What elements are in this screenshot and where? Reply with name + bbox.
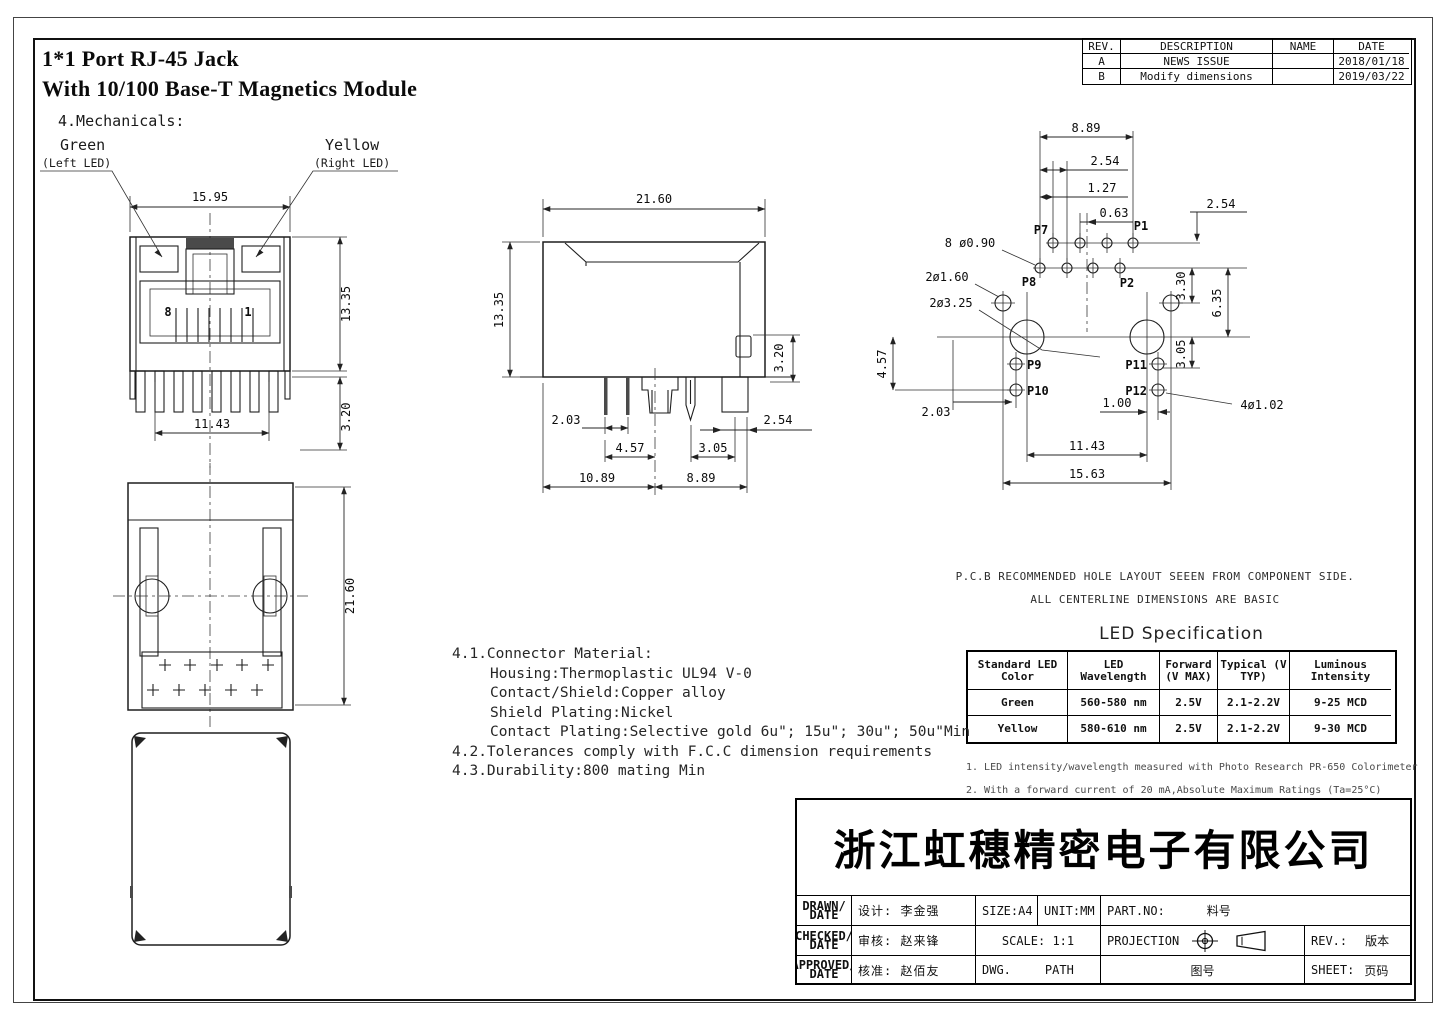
led-cell: Yellow xyxy=(968,716,1068,742)
led-cell: 9-30 MCD xyxy=(1290,716,1391,742)
p1-label: P1 xyxy=(1134,219,1148,233)
note-41c: Shield Plating:Nickel xyxy=(452,704,970,724)
dim-label: 21.60 xyxy=(343,578,357,614)
pcb-hole-layout: P7 P1 P8 P2 P9 P10 P11 P12 8 ø0.90 2ø1.6… xyxy=(875,121,1284,490)
led-specification: LED Specification Standard LED Color LED… xyxy=(966,624,1397,802)
pin-marks xyxy=(147,659,274,696)
dim-label: 15.95 xyxy=(192,190,228,204)
part-no-value: 料号 xyxy=(1207,902,1231,919)
led-cell: 2.1-2.2V xyxy=(1218,690,1290,716)
dim-label: 1.00 xyxy=(1103,396,1132,410)
hole-callout: 2ø3.25 xyxy=(929,296,972,310)
drawn-label: DRAWN/ DATE xyxy=(797,896,852,926)
scale-cell: SCALE: 1:1 xyxy=(976,926,1101,956)
dim-label: 15.63 xyxy=(1069,467,1105,481)
led-col-header: LED Wavelength xyxy=(1068,652,1160,690)
pcb-note-line1: P.C.B RECOMMENDED HOLE LAYOUT SEEEN FROM… xyxy=(955,570,1355,583)
dim-label: 1.27 xyxy=(1088,181,1117,195)
pcb-note: P.C.B RECOMMENDED HOLE LAYOUT SEEEN FROM… xyxy=(955,570,1355,606)
pin1-label: 1 xyxy=(244,305,251,319)
third-angle-projection-icon xyxy=(1189,929,1293,953)
pcb-note-line2: ALL CENTERLINE DIMENSIONS ARE BASIC xyxy=(955,593,1355,606)
top-view xyxy=(130,733,292,945)
dim-label: 3.05 xyxy=(1174,340,1188,369)
green-led-label: Green xyxy=(60,136,105,154)
note-41: 4.1.Connector Material: xyxy=(452,645,970,665)
dim-label: 3.20 xyxy=(339,403,353,432)
note-41a: Housing:Thermoplastic UL94 V-0 xyxy=(452,665,970,685)
side-view: 21.60 13.35 2.03 4.57 xyxy=(492,192,812,497)
led-cell: 560-580 nm xyxy=(1068,690,1160,716)
led-cell: Green xyxy=(968,690,1068,716)
dim-label: 11.43 xyxy=(1069,439,1105,453)
p11-label: P11 xyxy=(1125,358,1147,372)
dwg-cell: DWG. PATH xyxy=(976,956,1101,984)
green-led-sublabel: (Left LED) xyxy=(42,156,111,170)
led-cell: 580-610 nm xyxy=(1068,716,1160,742)
rev-cell: REV.: 版本 xyxy=(1305,926,1410,956)
front-view: 15.95 8 1 xyxy=(40,136,398,468)
led-cell: 2.5V xyxy=(1160,690,1218,716)
approved-label: APPROVED/ DATE xyxy=(797,956,852,984)
part-no-label: PART.NO: xyxy=(1107,904,1165,918)
yellow-led-sublabel: (Right LED) xyxy=(314,156,390,170)
checker-cell: 审核: 赵来锋 xyxy=(852,926,976,956)
title-block: 浙江虹穗精密电子有限公司 DRAWN/ DATE 设计: 李金强 SIZE:A4… xyxy=(795,798,1412,985)
sheet-cell: SHEET: 页码 xyxy=(1305,956,1410,984)
note-41d: Contact Plating:Selective gold 6u"; 15u"… xyxy=(452,723,970,743)
dim-label: 3.05 xyxy=(699,441,728,455)
p8-label: P8 xyxy=(1022,275,1036,289)
company-name: 浙江虹穗精密电子有限公司 xyxy=(797,800,1410,896)
dim-label: 8.89 xyxy=(687,471,716,485)
date-word: DATE xyxy=(810,970,839,979)
dim-label: 3.30 xyxy=(1174,272,1188,301)
date-word: DATE xyxy=(810,941,839,950)
dim-label: 2.54 xyxy=(764,413,793,427)
sheet-value: 页码 xyxy=(1364,962,1388,979)
led-col-header: Forward (V MAX) xyxy=(1160,652,1218,690)
dim-label: 0.63 xyxy=(1100,206,1129,220)
note-42: 4.2.Tolerances comply with F.C.C dimensi… xyxy=(452,743,970,763)
drawing-sheet: 1*1 Port RJ-45 Jack With 10/100 Base-T M… xyxy=(0,0,1445,1021)
dim-label: 10.89 xyxy=(579,471,615,485)
dim-label: 4.57 xyxy=(616,441,645,455)
rev-label: REV.: xyxy=(1311,934,1347,948)
hole-callout: 8 ø0.90 xyxy=(945,236,996,250)
dwg-label: DWG. xyxy=(982,963,1011,977)
dim-label: 13.35 xyxy=(492,292,506,328)
dim-label: 2.03 xyxy=(552,413,581,427)
led-cell: 2.1-2.2V xyxy=(1218,716,1290,742)
yellow-led-label: Yellow xyxy=(325,136,380,154)
bottom-view: 21.60 xyxy=(113,463,357,727)
projection-cell: PROJECTION xyxy=(1101,926,1305,956)
sheet-label: SHEET: xyxy=(1311,963,1354,977)
led-footnotes: 1. LED intensity/wavelength measured wit… xyxy=(966,756,1397,802)
size-cell: SIZE:A4 xyxy=(976,896,1038,926)
led-col-header: Luminous Intensity xyxy=(1290,652,1391,690)
dim-label: 2.03 xyxy=(922,405,951,419)
p2-label: P2 xyxy=(1120,276,1134,290)
hole-callout: 2ø1.60 xyxy=(925,270,968,284)
led-spec-title: LED Specification xyxy=(966,624,1397,644)
dim-label: 2.54 xyxy=(1091,154,1120,168)
dim-label: 2.54 xyxy=(1207,197,1236,211)
dim-label: 4.57 xyxy=(875,350,889,379)
path-label: PATH xyxy=(1045,963,1074,977)
projection-label: PROJECTION xyxy=(1107,934,1179,948)
led-col-header: Standard LED Color xyxy=(968,652,1068,690)
dim-label: 11.43 xyxy=(194,417,230,431)
dim-label: 8.89 xyxy=(1072,121,1101,135)
led-spec-table: Standard LED Color LED Wavelength Forwar… xyxy=(966,650,1397,744)
material-notes: 4.1.Connector Material: Housing:Thermopl… xyxy=(452,645,970,782)
led-cell: 9-25 MCD xyxy=(1290,690,1391,716)
approver-cell: 核准: 赵佰友 xyxy=(852,956,976,984)
led-col-header: Typical (V TYP) xyxy=(1218,652,1290,690)
designer-cell: 设计: 李金强 xyxy=(852,896,976,926)
checked-label: CHECKED/ DATE xyxy=(797,926,852,956)
dim-label: 13.35 xyxy=(339,286,353,322)
note-41b: Contact/Shield:Copper alloy xyxy=(452,684,970,704)
hole-callout: 4ø1.02 xyxy=(1240,398,1283,412)
note-43: 4.3.Durability:800 mating Min xyxy=(452,762,970,782)
part-no-cell: PART.NO: 料号 xyxy=(1101,896,1410,926)
p7-label: P7 xyxy=(1034,223,1048,237)
dim-label: 21.60 xyxy=(636,192,672,206)
dim-label: 6.35 xyxy=(1210,289,1224,318)
rev-value: 版本 xyxy=(1365,932,1389,949)
unit-cell: UNIT:MM xyxy=(1038,896,1101,926)
led-footnote1: 1. LED intensity/wavelength measured wit… xyxy=(966,756,1397,779)
p9-label: P9 xyxy=(1027,358,1041,372)
p10-label: P10 xyxy=(1027,384,1049,398)
led-cell: 2.5V xyxy=(1160,716,1218,742)
dwg-no-cell: 图号 xyxy=(1101,956,1305,984)
shield-holes xyxy=(991,295,1183,354)
dim-label: 3.20 xyxy=(772,344,786,373)
date-word: DATE xyxy=(810,911,839,920)
pin8-label: 8 xyxy=(164,305,171,319)
